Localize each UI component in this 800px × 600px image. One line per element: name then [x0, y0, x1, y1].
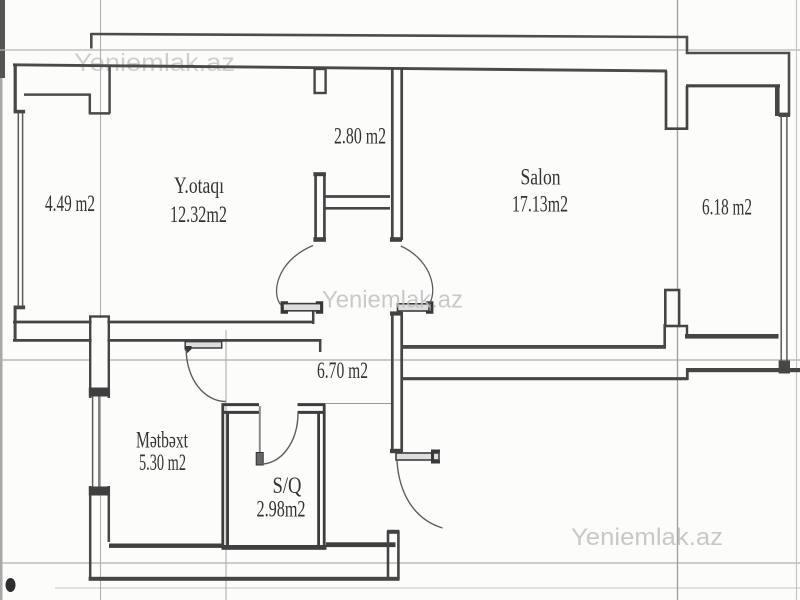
- svg-text:Yeniemlak.az: Yeniemlak.az: [322, 287, 463, 314]
- svg-text:5.30 m2: 5.30 m2: [139, 450, 186, 475]
- svg-text:4.49 m2: 4.49 m2: [45, 191, 95, 216]
- svg-text:12.32m2: 12.32m2: [170, 202, 227, 227]
- svg-text:2.80 m2: 2.80 m2: [334, 124, 386, 149]
- svg-text:Yeniemlak.az: Yeniemlak.az: [74, 49, 235, 77]
- svg-text:Y.otaqı: Y.otaqı: [174, 173, 224, 198]
- svg-text:S/Q: S/Q: [273, 473, 302, 498]
- svg-text:2.98m2: 2.98m2: [257, 497, 306, 522]
- svg-text:Mətbəxt: Mətbəxt: [136, 428, 188, 453]
- svg-text:6.70 m2: 6.70 m2: [317, 358, 368, 383]
- svg-text:Salon: Salon: [521, 165, 561, 190]
- svg-text:17.13m2: 17.13m2: [512, 192, 568, 217]
- svg-text:Yeniemlak.az: Yeniemlak.az: [571, 524, 723, 551]
- svg-text:6.18 m2: 6.18 m2: [702, 195, 752, 220]
